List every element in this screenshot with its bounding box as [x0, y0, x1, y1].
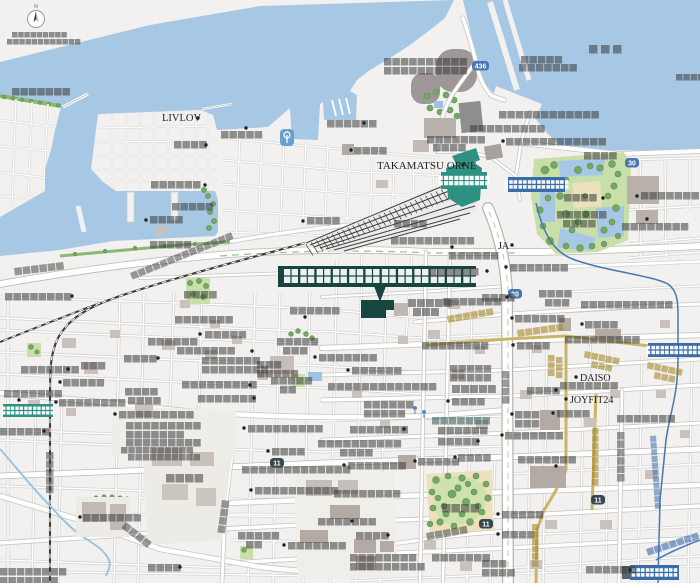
- svg-text:11: 11: [594, 497, 602, 504]
- svg-text:N: N: [34, 4, 38, 10]
- svg-text:LIVLOV: LIVLOV: [162, 113, 201, 124]
- svg-text:JA: JA: [498, 241, 510, 252]
- svg-text:JOYFIT24: JOYFIT24: [570, 395, 613, 406]
- svg-text:11: 11: [482, 521, 490, 528]
- svg-text:30: 30: [628, 160, 636, 167]
- svg-text:436: 436: [475, 63, 487, 70]
